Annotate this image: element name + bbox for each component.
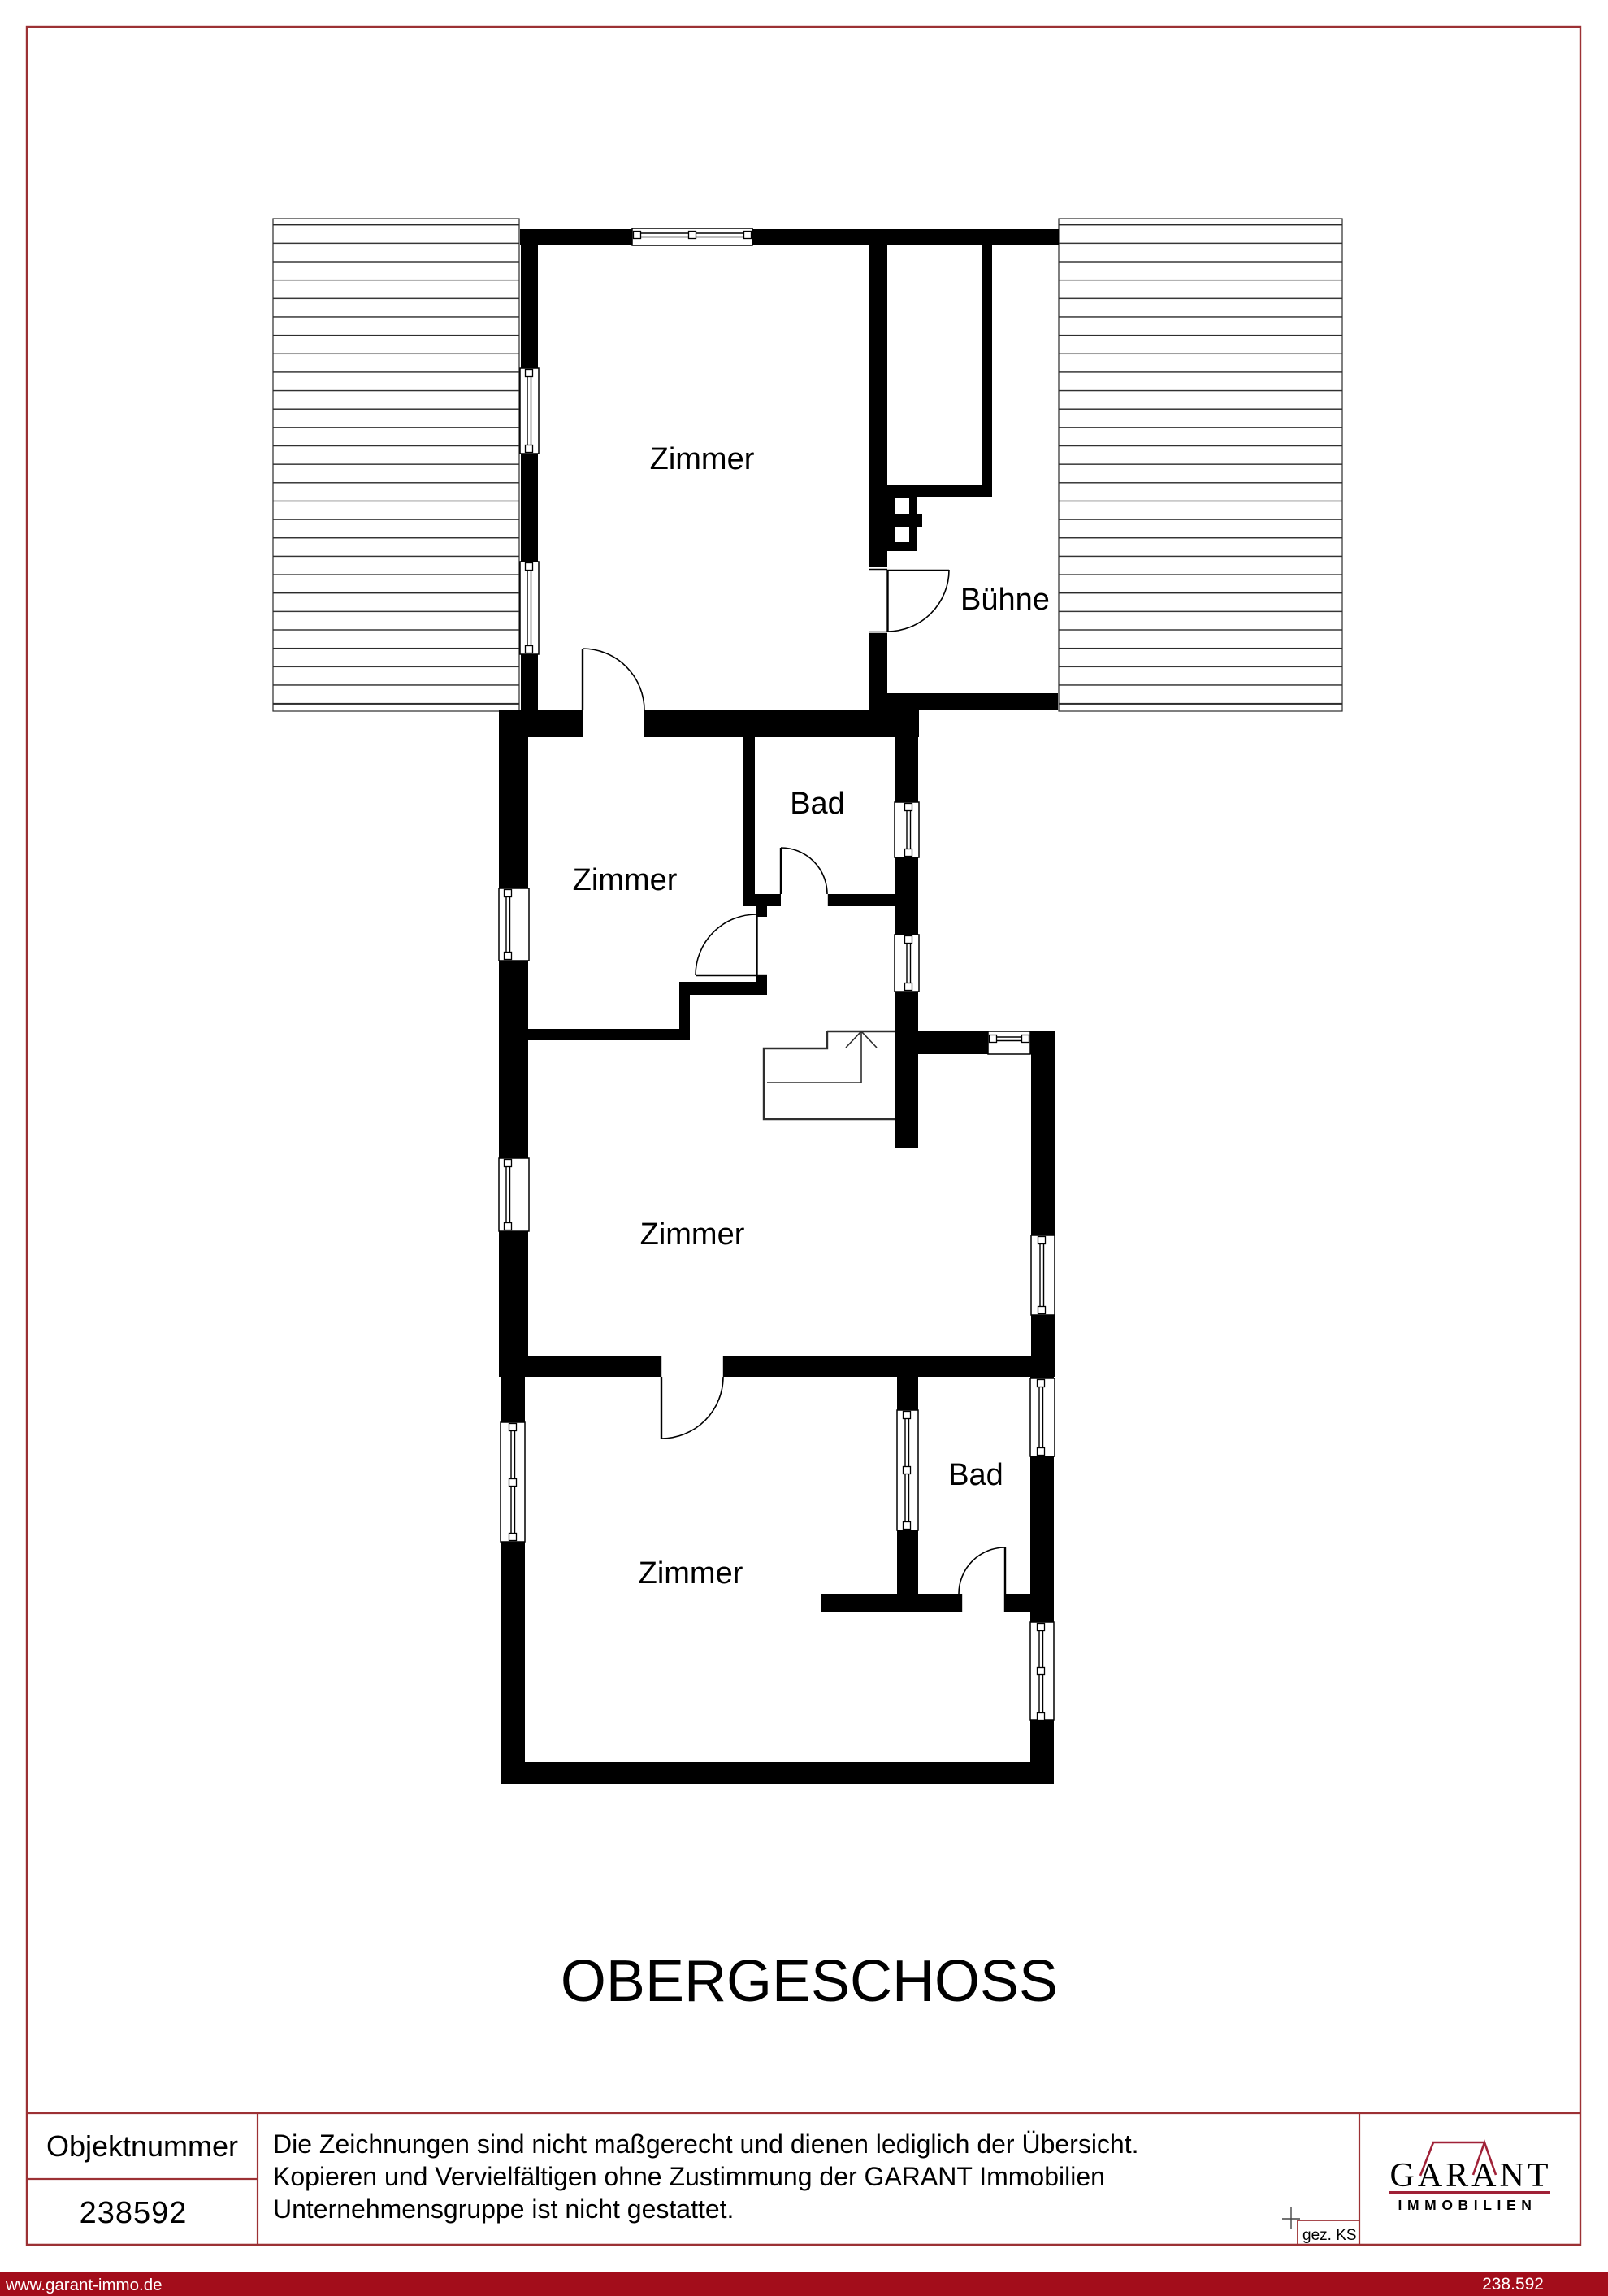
svg-text:IMMOBILIEN: IMMOBILIEN	[1398, 2197, 1537, 2213]
svg-text:Bad: Bad	[790, 787, 845, 821]
svg-text:Zimmer: Zimmer	[639, 1556, 743, 1591]
svg-text:Zimmer: Zimmer	[650, 442, 755, 476]
svg-text:Die Zeichnungen sind nicht maß: Die Zeichnungen sind nicht maßgerecht un…	[273, 2129, 1139, 2159]
svg-text:238.592: 238.592	[1482, 2275, 1544, 2294]
svg-text:Unternehmensgruppe ist nicht g: Unternehmensgruppe ist nicht gestattet.	[273, 2194, 734, 2224]
svg-text:238592: 238592	[80, 2196, 188, 2230]
svg-text:gez. KS: gez. KS	[1302, 2227, 1357, 2244]
svg-text:GARANT: GARANT	[1390, 2157, 1552, 2194]
svg-text:Bühne: Bühne	[960, 583, 1050, 617]
svg-text:Objektnummer: Objektnummer	[46, 2129, 238, 2163]
svg-text:Zimmer: Zimmer	[573, 863, 678, 897]
svg-text:Bad: Bad	[948, 1458, 1003, 1492]
svg-text:OBERGESCHOSS: OBERGESCHOSS	[561, 1949, 1058, 2014]
svg-text:Kopieren und Vervielfältigen o: Kopieren und Vervielfältigen ohne Zustim…	[273, 2162, 1105, 2191]
svg-text:www.garant-immo.de: www.garant-immo.de	[5, 2276, 163, 2294]
svg-text:Zimmer: Zimmer	[640, 1217, 745, 1252]
